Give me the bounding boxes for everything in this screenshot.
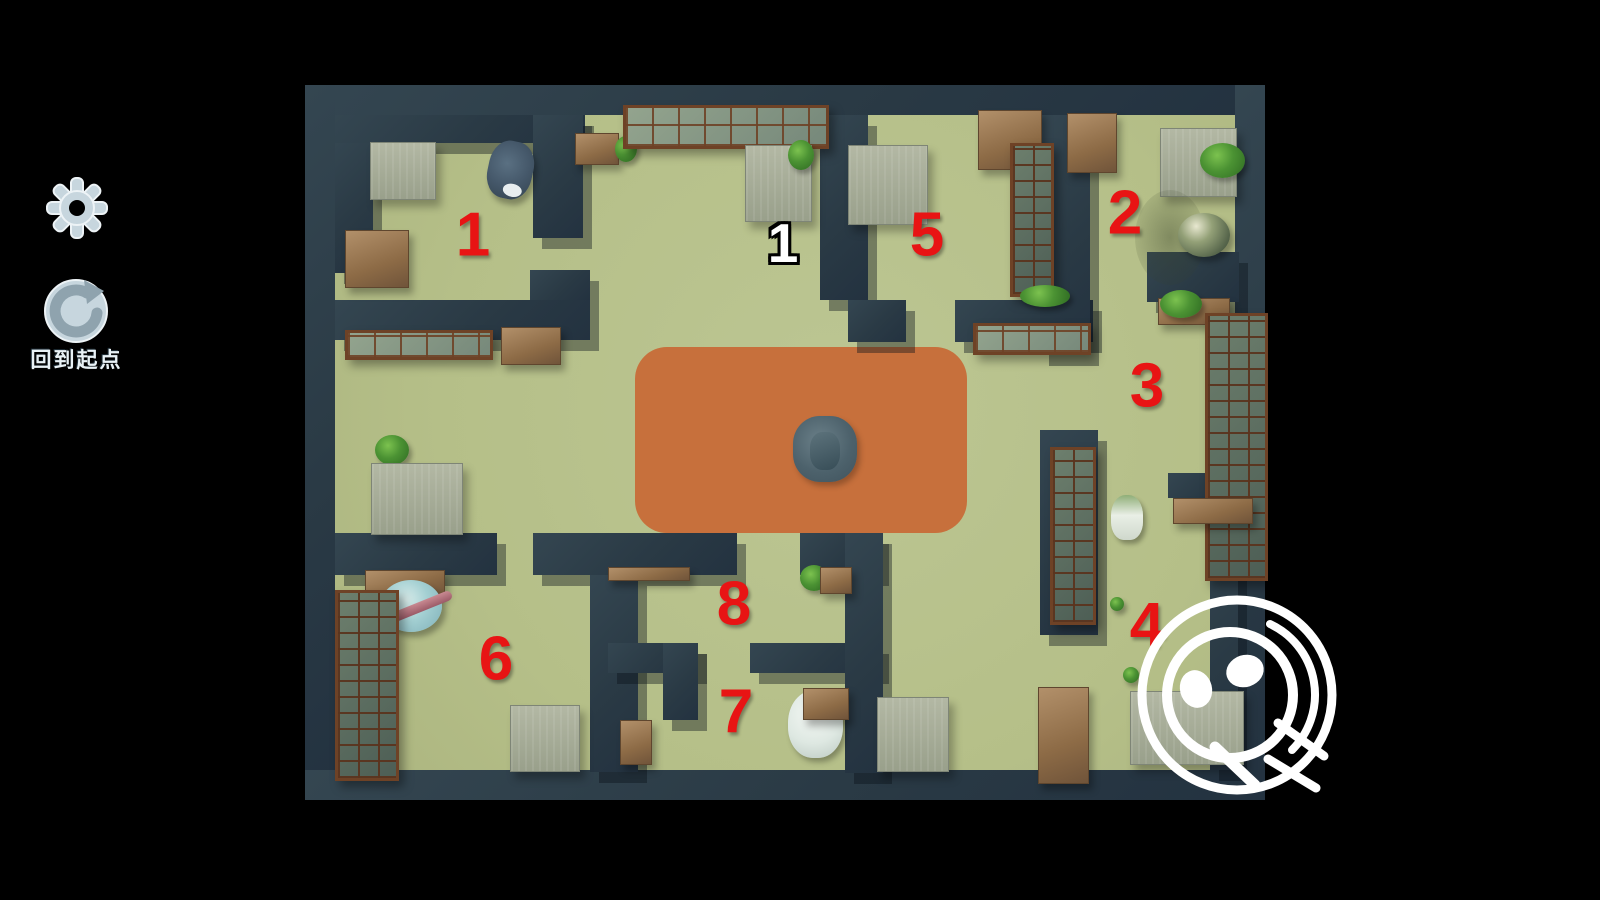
plant — [1160, 290, 1202, 318]
settings-button[interactable] — [45, 176, 109, 240]
shelf — [820, 567, 852, 594]
shelf — [1173, 498, 1253, 524]
room-marker-6: 6 — [479, 624, 513, 695]
wall-segment — [663, 643, 698, 720]
table — [877, 697, 949, 772]
cabinet — [345, 230, 409, 288]
wall-segment — [305, 85, 335, 800]
find-button[interactable] — [1118, 585, 1348, 815]
room-marker-7: 7 — [719, 677, 753, 748]
wall-segment — [335, 533, 497, 575]
gear-icon — [45, 176, 109, 240]
shoji-cabinet — [1050, 447, 1096, 625]
cabinet — [620, 720, 652, 765]
table — [803, 688, 849, 720]
planter — [1020, 285, 1070, 307]
shoji-window — [973, 323, 1091, 355]
magnifier-face-icon — [1118, 585, 1348, 815]
plant — [788, 140, 814, 170]
cabinet — [575, 133, 619, 165]
table — [371, 463, 463, 535]
shoji-window — [345, 330, 493, 360]
stone-basin — [793, 416, 857, 482]
game-screen: { "app": { "type": "hidden-object-floorp… — [0, 0, 1600, 900]
cabinet — [1038, 687, 1089, 784]
chair — [482, 137, 538, 203]
wall-segment — [848, 300, 906, 342]
wall-segment — [530, 270, 590, 300]
cabinet — [501, 327, 561, 365]
plant — [375, 435, 409, 465]
table — [510, 705, 580, 772]
room-marker-2: 2 — [1108, 178, 1142, 249]
shoji-window — [1205, 313, 1268, 581]
shelf — [608, 567, 690, 581]
glass-jar — [1178, 213, 1230, 257]
shoji-screen — [1010, 143, 1054, 297]
table — [370, 142, 436, 200]
room-marker-8: 8 — [717, 569, 751, 640]
plant — [1200, 143, 1245, 178]
reset-button[interactable] — [42, 277, 110, 345]
entrance-marker: 1 — [768, 211, 799, 275]
cabinet — [1067, 113, 1117, 173]
circular-arrow-icon — [42, 277, 110, 345]
room-marker-1: 1 — [456, 200, 490, 271]
reset-button-label: 回到起点 — [14, 344, 139, 374]
room-marker-5: 5 — [910, 200, 944, 271]
room-marker-3: 3 — [1130, 351, 1164, 422]
shoji-screen — [335, 590, 399, 781]
vase — [1111, 495, 1143, 540]
